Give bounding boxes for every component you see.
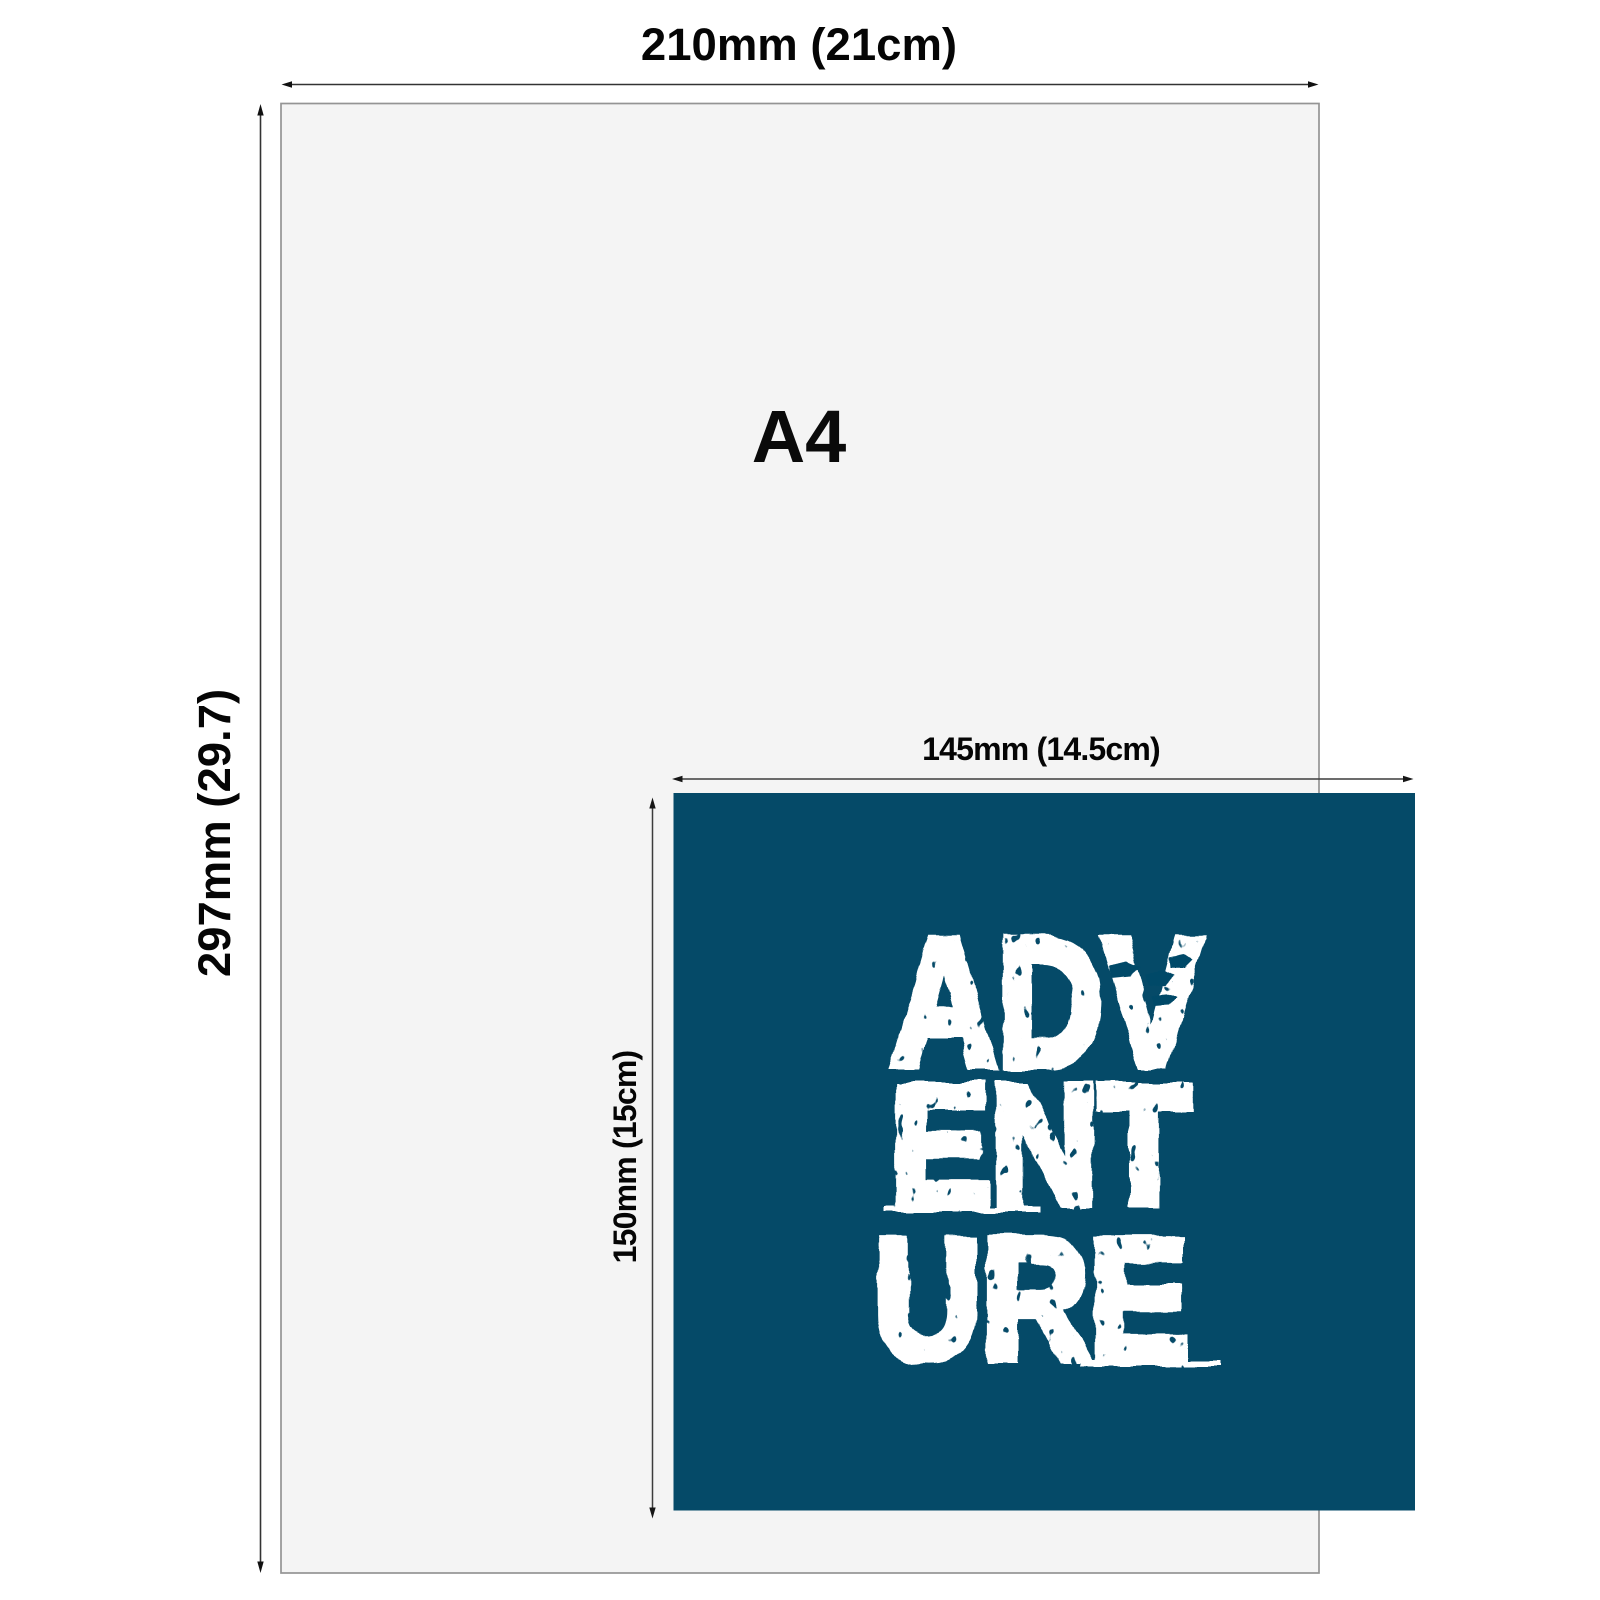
svg-text:297mm (29.7): 297mm (29.7) [189, 689, 240, 977]
svg-text:145mm (14.5cm): 145mm (14.5cm) [922, 731, 1160, 767]
svg-text:URE: URE [874, 1203, 1189, 1395]
svg-text:150mm (15cm): 150mm (15cm) [607, 1050, 643, 1263]
svg-text:A4: A4 [752, 395, 847, 478]
svg-text:210mm (21cm): 210mm (21cm) [641, 19, 957, 70]
